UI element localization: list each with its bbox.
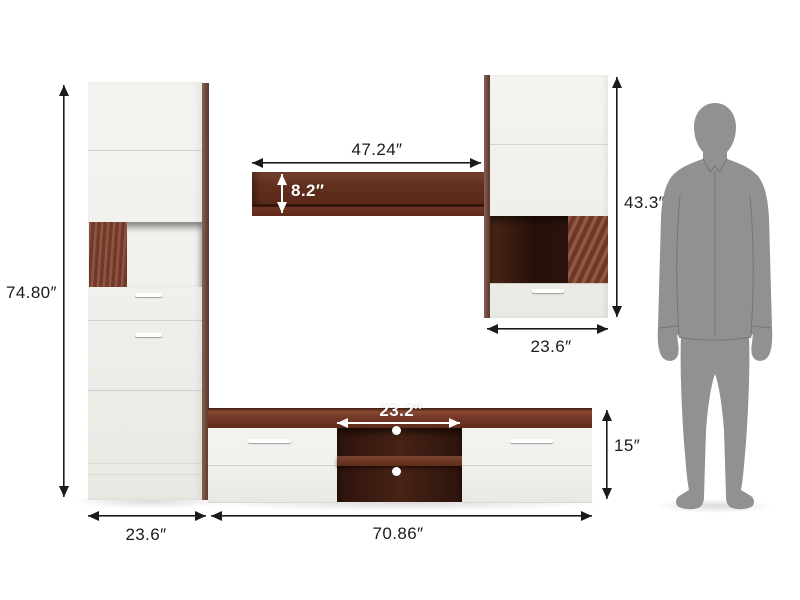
left-cabinet-drawer-seam [88,320,202,321]
dim-label-left-cabinet-height: 74.80″ [6,283,57,303]
dim-label-tv-stand-height: 15″ [614,436,640,456]
tv-right-drawer-seam [462,465,592,466]
tv-left-drawer-seam [208,465,337,466]
dim-line-left-cabinet-width [88,511,206,521]
tv-stand-left-drawer [208,428,337,503]
left-cabinet-door-seam [88,150,202,151]
left-niche-wood-block [89,222,127,287]
tv-middle-shelf-board [337,456,462,466]
right-cabinet-handle [532,289,564,293]
tv-right-drawer-handle [510,439,553,443]
dim-label-right-cabinet-width: 23.6″ [530,337,571,357]
dim-line-right-cabinet-height [612,77,622,317]
left-cabinet-handle-2 [135,333,162,337]
right-cabinet-drawer-seam [490,283,608,284]
dim-line-tv-stand-width [211,511,592,521]
right-cabinet-niche [490,216,608,283]
right-niche-wood-block [568,216,608,283]
dim-label-open-shelf-width: 23.2″ [379,401,422,421]
dim-label-left-cabinet-width: 23.6″ [125,525,166,545]
dim-line-shelf-height [277,174,287,213]
tv-left-drawer-handle [248,439,291,443]
dimension-diagram: 74.80″ 47.24″ 8.2″ 43.3″ 23.6″ 23.2″ 15″… [0,0,800,600]
dim-line-tv-stand-height [602,410,612,499]
dim-line-right-cabinet-width [487,324,608,334]
right-cabinet-door-seam [490,144,608,145]
silhouette-head [694,103,736,166]
silhouette-pants [676,336,754,509]
left-cabinet [88,82,202,500]
cable-hole-bottom [392,467,401,476]
left-cabinet-door-seam-4 [88,474,202,475]
dim-line-left-cabinet-height [59,85,69,497]
left-cabinet-handle-1 [135,293,162,297]
tv-stand-right-drawer [462,428,592,503]
human-silhouette [653,100,777,510]
left-cabinet-door-seam-3 [88,463,202,464]
left-cabinet-door-seam-2 [88,390,202,391]
tv-stand-open-shelf [337,428,462,502]
dim-label-tv-stand-width: 70.86″ [373,524,424,544]
left-cabinet-niche [89,222,202,287]
right-cabinet [490,75,608,318]
dim-label-shelf-height: 8.2″ [291,181,324,201]
dim-label-shelf-width: 47.24″ [352,140,403,160]
